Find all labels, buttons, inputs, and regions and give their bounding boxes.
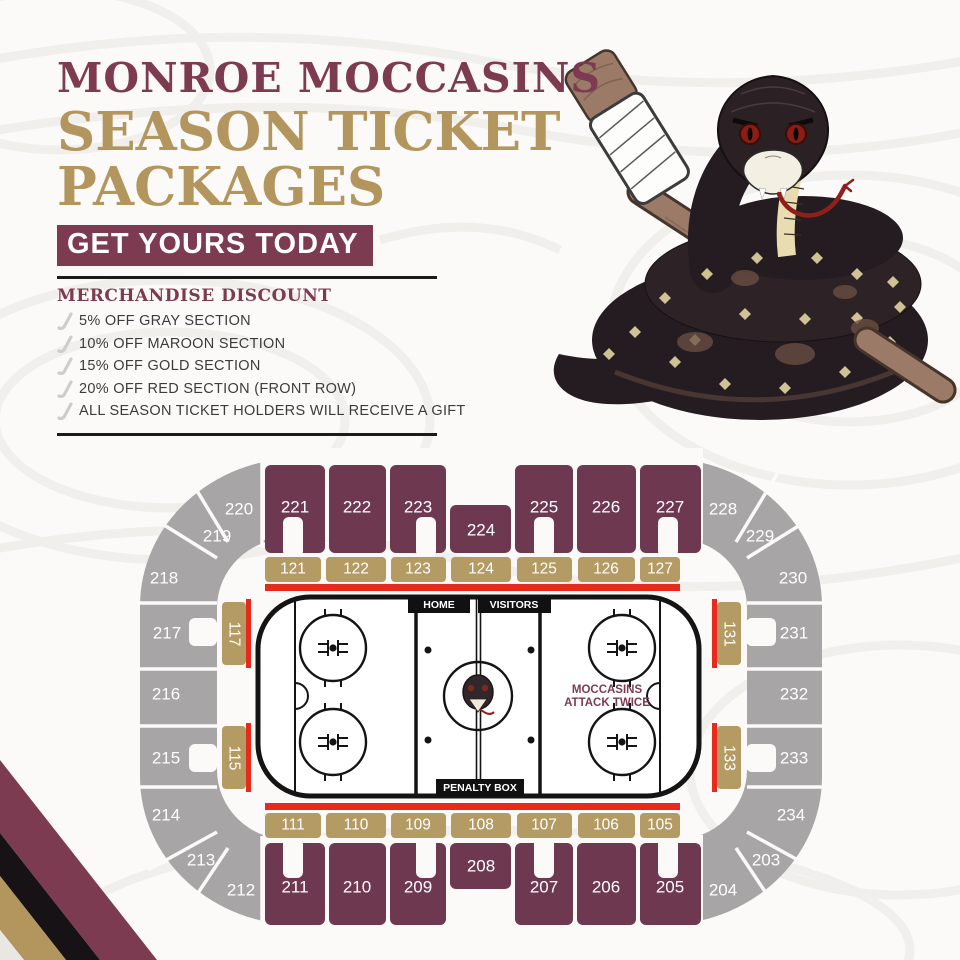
label-210: 210	[343, 878, 371, 897]
home-label: HOME	[423, 599, 455, 611]
penalty-box-label: PENALTY BOX	[443, 782, 517, 794]
label-125: 125	[531, 561, 557, 578]
label-214: 214	[152, 806, 180, 825]
label-206: 206	[592, 878, 620, 897]
perk-text: ALL SEASON TICKET HOLDERS WILL RECEIVE A…	[79, 403, 466, 419]
label-203: 203	[752, 851, 780, 870]
headline-line2: PACKAGES	[57, 160, 577, 215]
label-115: 115	[226, 746, 243, 771]
perk-text: 10% OFF MAROON SECTION	[79, 336, 285, 352]
label-127: 127	[647, 561, 673, 578]
label-209: 209	[404, 878, 432, 897]
hockey-stick-bullet-icon	[57, 402, 77, 420]
label-131: 131	[721, 621, 738, 647]
perk-text: 20% OFF RED SECTION (FRONT ROW)	[79, 381, 356, 397]
label-133: 133	[721, 745, 738, 771]
label-233: 233	[780, 749, 808, 768]
label-217: 217	[153, 624, 181, 643]
label-106: 106	[593, 817, 619, 834]
corner-stripes	[0, 760, 157, 960]
label-232: 232	[780, 685, 808, 704]
label-117: 117	[226, 622, 243, 647]
label-225: 225	[530, 498, 558, 517]
hockey-stick-bullet-icon	[57, 335, 77, 353]
label-229: 229	[746, 527, 774, 546]
label-105: 105	[647, 817, 673, 834]
hockey-stick-bullet-icon	[57, 312, 77, 330]
label-126: 126	[593, 561, 619, 578]
label-216: 216	[152, 685, 180, 704]
team-name-title: MONROE MOCCASINS	[57, 58, 577, 99]
cta-banner: GET YOURS TODAY	[57, 225, 373, 266]
label-212: 212	[227, 881, 255, 900]
perk-item-red: 20% OFF RED SECTION (FRONT ROW)	[57, 378, 577, 401]
perk-item-maroon: 10% OFF MAROON SECTION	[57, 333, 577, 356]
merchandise-discount-heading: MERCHANDISE DISCOUNT	[57, 286, 577, 306]
front-row-strip-top	[265, 584, 680, 591]
seating-chart: HOME VISITORS PENALTY BOX MOCCASINS ATTA…	[140, 448, 822, 930]
label-110: 110	[344, 817, 369, 834]
perk-text: 15% OFF GOLD SECTION	[79, 358, 261, 374]
headline-line1: SEASON TICKET	[57, 105, 577, 160]
label-218: 218	[150, 569, 178, 588]
perk-item-gold: 15% OFF GOLD SECTION	[57, 355, 577, 378]
label-204: 204	[709, 881, 737, 900]
label-227: 227	[656, 498, 684, 517]
label-231: 231	[780, 624, 808, 643]
label-123: 123	[405, 561, 431, 578]
poster-header: MONROE MOCCASINS SEASON TICKET PACKAGES …	[57, 58, 577, 436]
label-122: 122	[343, 561, 369, 578]
perk-text: 5% OFF GRAY SECTION	[79, 313, 251, 329]
label-208: 208	[467, 857, 495, 876]
label-219: 219	[203, 527, 231, 546]
label-109: 109	[405, 817, 431, 834]
visitors-label: VISITORS	[490, 599, 539, 611]
season-ticket-poster: HOME VISITORS PENALTY BOX MOCCASINS ATTA…	[0, 0, 960, 960]
divider-top	[57, 276, 437, 279]
label-226: 226	[592, 498, 620, 517]
label-223: 223	[404, 498, 432, 517]
label-224: 224	[467, 521, 495, 540]
label-215: 215	[152, 749, 180, 768]
hockey-stick-bullet-icon	[57, 357, 77, 375]
label-211: 211	[281, 878, 308, 897]
label-228: 228	[709, 500, 737, 519]
perks-list: 5% OFF GRAY SECTION 10% OFF MAROON SECTI…	[57, 310, 577, 423]
divider-bottom	[57, 433, 437, 436]
label-124: 124	[468, 561, 494, 578]
label-205: 205	[656, 878, 684, 897]
hockey-stick-bullet-icon	[57, 380, 77, 398]
front-row-strip-bottom	[265, 803, 680, 810]
snake-mascot-illustration	[545, 42, 960, 442]
label-121: 121	[280, 561, 306, 578]
center-slogan-line2: ATTACK TWICE	[564, 697, 650, 709]
perk-item-gift: ALL SEASON TICKET HOLDERS WILL RECEIVE A…	[57, 400, 577, 423]
label-230: 230	[779, 569, 807, 588]
label-221: 221	[281, 498, 309, 517]
snake-mascot-svg	[545, 42, 960, 442]
label-222: 222	[343, 498, 371, 517]
label-111: 111	[281, 817, 305, 834]
label-213: 213	[187, 851, 215, 870]
label-108: 108	[468, 817, 494, 834]
label-107: 107	[531, 817, 557, 834]
label-220: 220	[225, 500, 253, 519]
perk-item-gray: 5% OFF GRAY SECTION	[57, 310, 577, 333]
label-234: 234	[777, 806, 805, 825]
label-207: 207	[530, 878, 558, 897]
ice-rink: HOME VISITORS PENALTY BOX MOCCASINS ATTA…	[258, 596, 699, 796]
center-slogan-line1: MOCCASINS	[572, 684, 643, 696]
